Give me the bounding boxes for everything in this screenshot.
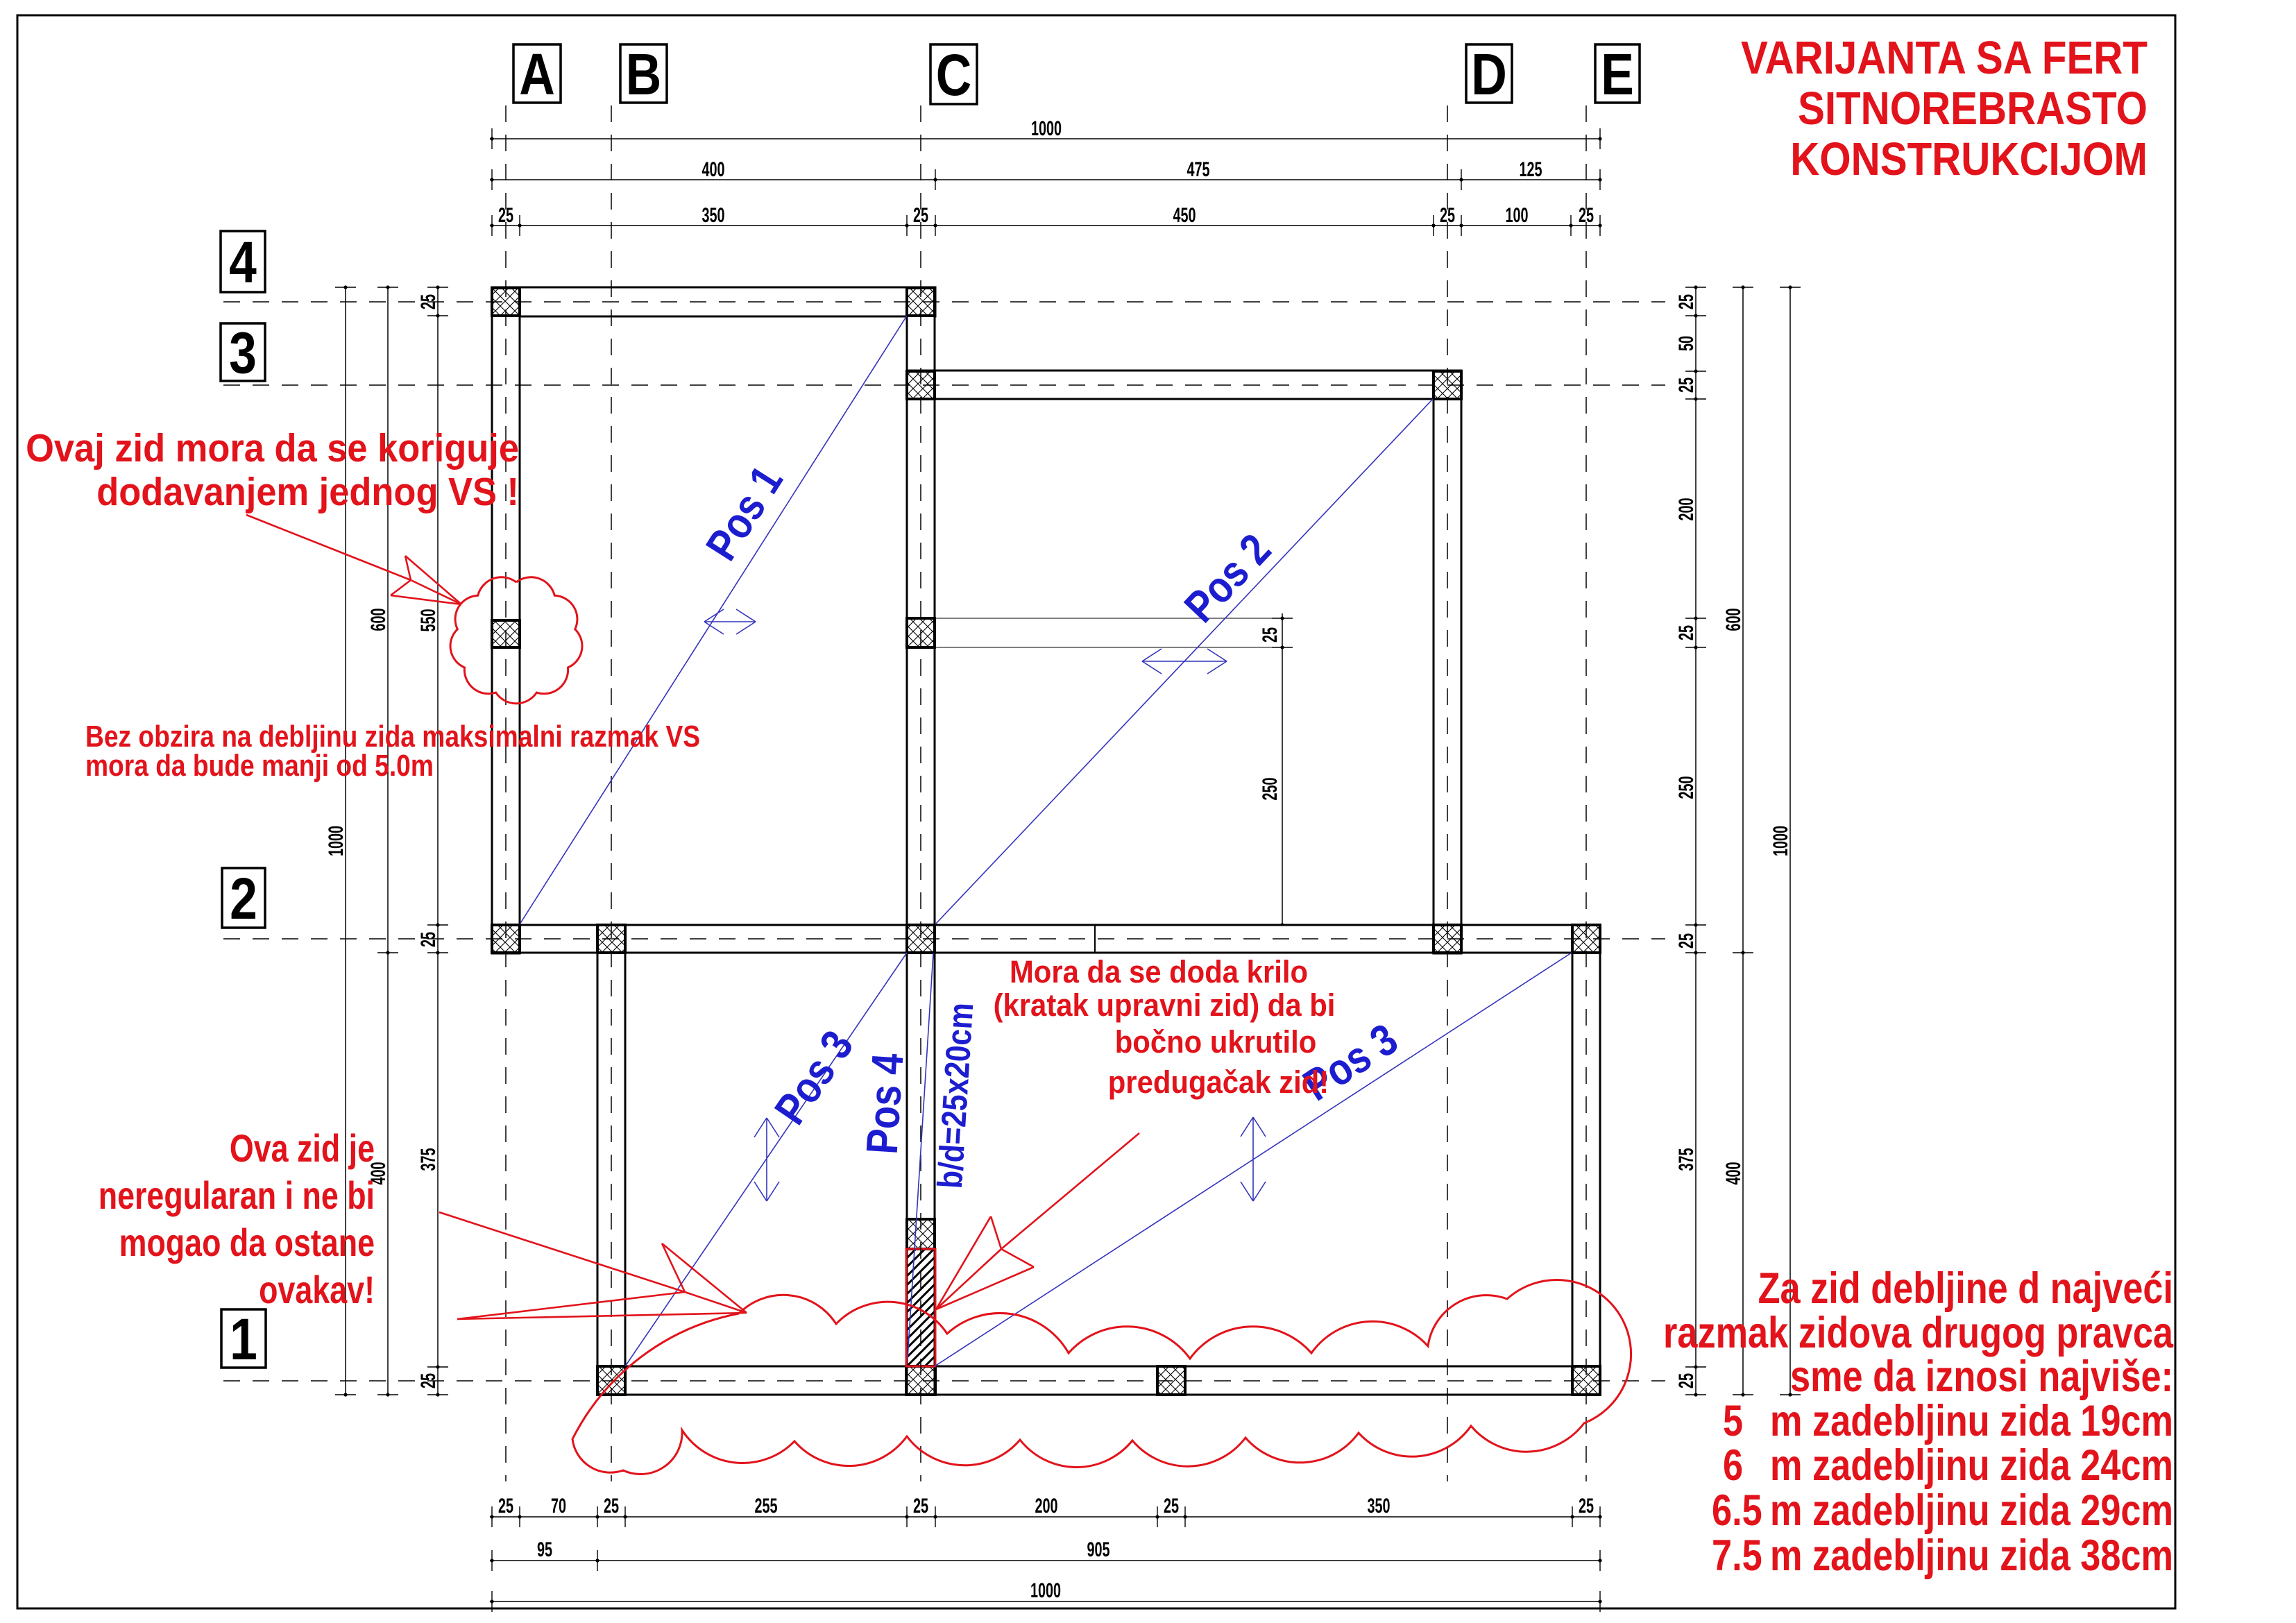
svg-text:Pos 4: Pos 4 (856, 1052, 912, 1155)
svg-text:dodavanjem jednog VS !: dodavanjem jednog VS ! (96, 469, 519, 514)
svg-text:600: 600 (367, 608, 390, 631)
svg-text:sme da iznosi najviše:: sme da iznosi najviše: (1790, 1353, 2173, 1402)
svg-text:250: 250 (1259, 777, 1282, 800)
svg-text:600: 600 (1722, 608, 1745, 631)
svg-text:mora da bude manji od 5.0m: mora da bude manji od 5.0m (85, 748, 434, 783)
svg-text:70: 70 (551, 1495, 566, 1518)
svg-text:b/d=25x20cm: b/d=25x20cm (930, 1001, 980, 1189)
svg-text:4: 4 (229, 229, 257, 295)
svg-text:B: B (626, 41, 662, 107)
svg-text:25: 25 (1579, 1495, 1594, 1518)
svg-text:450: 450 (1173, 204, 1196, 227)
svg-text:6: 6 (1723, 1442, 1743, 1490)
svg-text:905: 905 (1087, 1538, 1109, 1561)
svg-text:(kratak upravni zid) da bi: (kratak upravni zid) da bi (994, 989, 1336, 1023)
svg-text:3: 3 (229, 320, 257, 386)
svg-text:m zadebljinu zida 19cm: m zadebljinu zida 19cm (1770, 1397, 2173, 1446)
svg-text:bočno ukrutilo: bočno ukrutilo (1115, 1026, 1316, 1060)
svg-text:2: 2 (230, 865, 257, 931)
svg-text:1000: 1000 (325, 826, 348, 856)
svg-text:25: 25 (1675, 294, 1698, 309)
svg-text:350: 350 (1367, 1495, 1390, 1518)
svg-text:Za zid debljine d najveći: Za zid debljine d najveći (1758, 1265, 2173, 1314)
svg-text:E: E (1601, 41, 1634, 107)
svg-text:100: 100 (1505, 204, 1528, 227)
svg-text:25: 25 (604, 1495, 619, 1518)
svg-text:25: 25 (1259, 627, 1282, 643)
svg-text:125: 125 (1519, 158, 1542, 181)
svg-text:25: 25 (913, 1495, 928, 1518)
svg-text:7.5: 7.5 (1712, 1532, 1762, 1581)
svg-text:A: A (519, 41, 555, 107)
svg-text:5: 5 (1723, 1397, 1743, 1446)
svg-text:D: D (1471, 41, 1507, 107)
svg-text:Pos 1: Pos 1 (696, 457, 792, 569)
svg-text:375: 375 (417, 1148, 440, 1171)
svg-text:Ova zid je: Ova zid je (230, 1126, 375, 1170)
svg-text:95: 95 (537, 1538, 552, 1561)
svg-text:mogao da ostane: mogao da ostane (119, 1221, 375, 1264)
svg-text:1000: 1000 (1030, 1579, 1061, 1602)
svg-text:375: 375 (1675, 1148, 1698, 1171)
svg-text:25: 25 (1675, 377, 1698, 393)
svg-text:razmak zidova drugog pravca: razmak zidova drugog pravca (1663, 1309, 2174, 1358)
svg-text:neregularan i ne bi: neregularan i ne bi (99, 1173, 375, 1217)
svg-text:255: 255 (754, 1495, 777, 1518)
svg-text:350: 350 (701, 204, 724, 227)
svg-text:SITNOREBRASTO: SITNOREBRASTO (1798, 83, 2148, 135)
svg-text:250: 250 (1675, 776, 1698, 799)
svg-text:200: 200 (1035, 1495, 1057, 1518)
svg-text:25: 25 (1675, 933, 1698, 949)
svg-text:KONSTRUKCIJOM: KONSTRUKCIJOM (1790, 133, 2148, 185)
svg-text:VARIJANTA SA FERT: VARIJANTA SA FERT (1741, 32, 2148, 84)
svg-text:400: 400 (1722, 1162, 1745, 1184)
svg-text:1: 1 (230, 1306, 257, 1372)
svg-text:C: C (936, 42, 972, 108)
svg-text:m zadebljinu zida 29cm: m zadebljinu zida 29cm (1770, 1487, 2173, 1536)
svg-text:25: 25 (417, 932, 440, 947)
svg-text:200: 200 (1675, 498, 1698, 520)
svg-text:475: 475 (1187, 158, 1209, 181)
svg-text:400: 400 (701, 158, 724, 181)
svg-text:50: 50 (1675, 336, 1698, 351)
svg-text:1000: 1000 (1031, 117, 1062, 140)
svg-text:Ovaj zid mora da se koriguje: Ovaj zid mora da se koriguje (26, 425, 519, 470)
svg-text:ovakav!: ovakav! (259, 1268, 375, 1311)
svg-text:m zadebljinu zida 38cm: m zadebljinu zida 38cm (1770, 1532, 2173, 1581)
svg-text:Mora da se doda krilo: Mora da se doda krilo (1010, 955, 1308, 990)
svg-text:25: 25 (1164, 1495, 1179, 1518)
svg-text:25: 25 (1675, 625, 1698, 640)
svg-text:1000: 1000 (1769, 826, 1792, 856)
svg-text:550: 550 (417, 609, 440, 631)
svg-text:m zadebljinu zida 24cm: m zadebljinu zida 24cm (1770, 1442, 2173, 1490)
svg-text:predugačak zid!: predugačak zid! (1108, 1066, 1329, 1101)
svg-text:6.5: 6.5 (1712, 1487, 1762, 1536)
svg-text:25: 25 (498, 1495, 513, 1518)
svg-text:25: 25 (1675, 1373, 1698, 1388)
